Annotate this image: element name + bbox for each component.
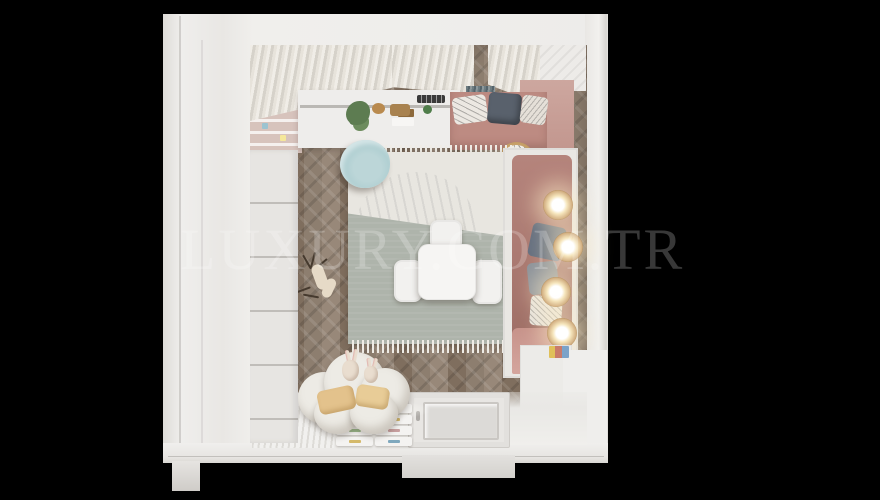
watermark-text: LUXURY.COM.TR [180,221,740,281]
wardrobe-drawers [250,150,298,443]
storage-tray [336,437,373,446]
pencil-organizer [417,95,445,103]
teal-chair [340,140,390,188]
bottom-wall [163,443,608,463]
desk-basket [372,103,385,114]
desk-wood-tray [390,104,410,116]
storage-tray [375,437,412,446]
bench-pillow-slate [487,92,523,126]
deer-antler [303,294,319,299]
wall-lamp [547,318,577,348]
wall-lamp [543,190,573,220]
book-stack [549,346,569,358]
door-panel [423,402,499,440]
desk-paper [392,118,414,126]
cloud-bean-bag [298,346,410,438]
bottom-wall-groove [168,456,604,457]
shelf-toy [280,135,286,141]
cabinet-foot [172,461,200,491]
bunny-plush [364,366,378,383]
bench-pillow-patterned [451,94,488,125]
desk-cup [423,105,432,114]
bench-pillow-patterned [519,94,549,126]
door-sill-foot [402,455,515,478]
render-canvas: LUXURY.COM.TR [0,0,880,500]
bunny-plush [342,360,359,381]
interior-door [408,392,510,448]
shelf-toy [262,123,268,129]
